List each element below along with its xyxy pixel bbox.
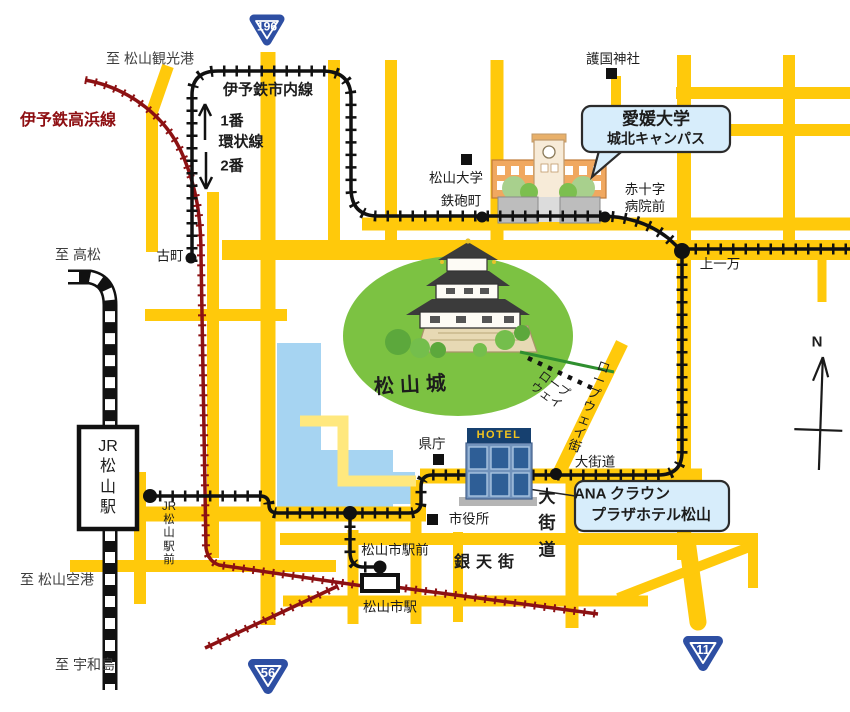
label-teppocho: 鉄砲町: [441, 194, 482, 211]
station-teppocho: [477, 212, 488, 223]
station-sekijuji-byoinmae: [600, 212, 611, 223]
shield-196-number: 196: [257, 20, 277, 35]
shield-56-number: 56: [261, 665, 275, 681]
station-kamiichiman: [674, 243, 690, 259]
label-north: N: [812, 334, 823, 353]
label-to-uwajima: 至 宇和島: [55, 656, 115, 674]
marker-gokoku-shrine: [606, 68, 617, 79]
label-loop-2: 2番: [220, 158, 243, 177]
loop-up-arrow: [199, 104, 211, 140]
label-takahama-line: 伊予鉄高浜線: [20, 111, 116, 131]
label-shiyakusho: 市役所: [449, 512, 490, 529]
label-gokoku-shrine: 護国神社: [586, 52, 640, 69]
matsuyama-access-map: 至 松山観光港 伊予鉄高浜線 伊予鉄市内線 1番 環状線 2番 護国神社 松山大…: [0, 0, 850, 712]
loop-down-arrow: [200, 152, 212, 189]
label-matsuyama-castle: 松山城: [373, 371, 452, 400]
loop-direction-arrows: [199, 104, 212, 189]
callout-ana-line1: ANA クラウン: [574, 486, 670, 505]
label-matsuyama-univ: 松山大学: [429, 171, 483, 188]
label-sekijuji-byoinmae: 赤十字 病院前: [625, 182, 666, 216]
label-okaido-stop: 大街道: [575, 455, 616, 472]
marker-kencho: [433, 454, 444, 465]
road-r11: [687, 540, 698, 622]
callout-ehime-univ-line1: 愛媛大学: [622, 108, 690, 129]
label-to-kanko-port: 至 松山観光港: [106, 50, 194, 68]
station-komachi: [186, 253, 197, 264]
shield-11-number: 11: [696, 642, 710, 658]
station-shieki-mae: [374, 561, 387, 574]
road-port: [152, 66, 168, 252]
label-kamiichiman: 上一万: [700, 257, 741, 274]
label-okaido-street: 大 街 道: [539, 484, 556, 563]
label-loop-1: 1番: [220, 113, 243, 132]
label-jr-matsuyama-station: JR 松 山 駅: [98, 437, 118, 519]
label-komachi: 古町: [157, 249, 184, 266]
label-jr-ekimae: JR 松 山 駅 前: [162, 501, 176, 567]
label-hotel-sign: HOTEL: [477, 429, 522, 443]
marker-matsuyama-univ: [461, 154, 472, 165]
marker-shiyakusho: [427, 514, 438, 525]
label-kencho: 県庁: [419, 437, 446, 454]
label-shinai-line: 伊予鉄市内線: [223, 82, 313, 101]
station-okaido: [550, 468, 562, 480]
label-shieki-mae: 松山市駅前: [361, 543, 429, 560]
label-kanjosen: 環状線: [218, 134, 263, 153]
map-canvas: [0, 0, 850, 712]
label-to-airport: 至 松山空港: [20, 571, 94, 589]
castle-wall-3: [447, 258, 487, 271]
label-shieki: 松山市駅: [363, 600, 417, 617]
north-arrow: [793, 356, 845, 471]
label-gintengai: 銀天街: [454, 553, 520, 573]
castle-finial: [465, 238, 470, 243]
station-junction: [343, 506, 357, 520]
callout-ana-line2: プラザホテル松山: [591, 507, 711, 526]
station-jr-ekimae: [143, 489, 157, 503]
matsuyama-shieki-terminal-box: [362, 575, 398, 591]
callout-ehime-univ-line2: 城北キャンパス: [607, 130, 705, 148]
label-to-takamatsu: 至 高松: [55, 246, 101, 264]
